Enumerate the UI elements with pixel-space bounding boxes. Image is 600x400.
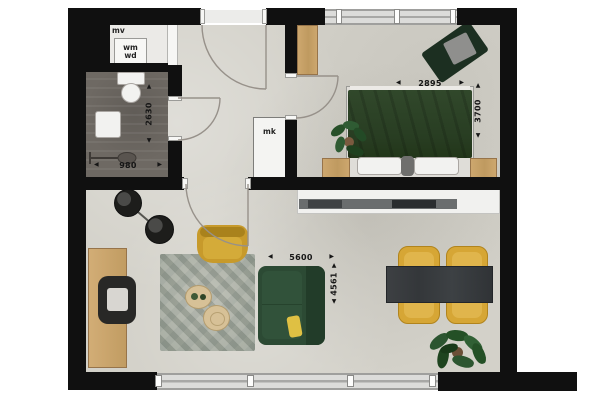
ceiling-lamp-icon (114, 189, 142, 217)
dimension-bathroom-width: ◀ 980 ▶ (94, 159, 162, 171)
dimension-bedroom-depth: ▲ 3700 ▼ (469, 83, 487, 139)
dimension-living-width: ◀ 5600 ▶ (268, 251, 334, 263)
floor-plan: mv wm wd mk (0, 0, 600, 400)
bedroom-door-arc (296, 76, 338, 118)
mv-label: mv (112, 27, 125, 35)
dimension-bathroom-depth: ▲ 2630 ▼ (140, 84, 158, 144)
door-swing-overlay (0, 0, 600, 400)
living-door-arc (186, 184, 248, 246)
dimension-living-depth: ▲ 4561 ▼ (325, 263, 343, 305)
dimension-bedroom-width: ◀ 2895 ▶ (396, 77, 464, 89)
bathroom-door-arc (178, 98, 220, 140)
entry-door-arc (202, 25, 266, 89)
ceiling-lamp-icon-2 (145, 215, 174, 244)
mk-label: mk (263, 128, 276, 136)
